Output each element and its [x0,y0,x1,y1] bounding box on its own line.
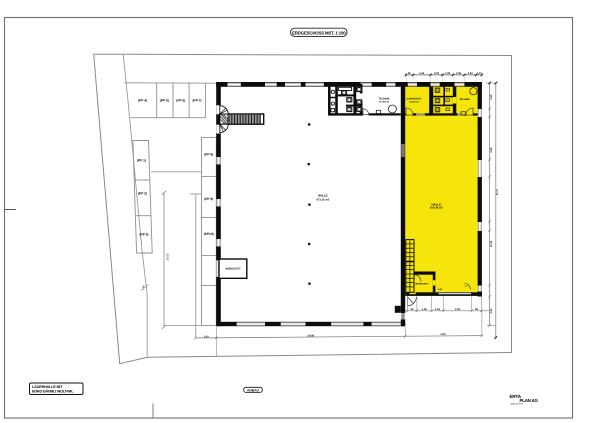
svg-text:AUFENTHALT: AUFENTHALT [406,98,422,101]
svg-text:(PP 6): (PP 6) [176,99,185,103]
svg-text:ERDGESCHOSS MST. 1:100: ERDGESCHOSS MST. 1:100 [292,31,346,36]
svg-text:2.50: 2.50 [490,94,493,99]
svg-text:1.90: 1.90 [445,72,451,75]
svg-text:(PP 2): (PP 2) [138,191,147,195]
svg-text:4600 OLTEN: 4600 OLTEN [511,402,523,405]
svg-text:6.55: 6.55 [490,147,493,152]
svg-text:ANBAU: ANBAU [247,388,260,392]
svg-text:HALLE: HALLE [318,194,328,198]
svg-text:2%: 2% [465,285,468,288]
svg-text:2.24: 2.24 [468,72,474,75]
svg-text:PLAN AG: PLAN AG [520,398,539,403]
svg-text:10.25: 10.25 [490,240,493,247]
svg-text:30.98: 30.98 [308,334,315,337]
svg-text:(PP 8): (PP 8) [204,152,213,156]
svg-text:(PP 1): (PP 1) [137,158,146,162]
svg-text:2.90: 2.90 [490,308,493,313]
svg-text:(PP 4): (PP 4) [138,99,147,103]
svg-text:TECHNIK: TECHNIK [459,98,470,101]
svg-text:2.83: 2.83 [455,308,461,311]
svg-text:21.35 m2: 21.35 m2 [409,100,419,103]
svg-text:3.44: 3.44 [419,72,425,75]
svg-text:2.06: 2.06 [456,72,462,75]
svg-text:27.25 m2: 27.25 m2 [379,100,389,103]
svg-text:WERKSTATT: WERKSTATT [415,283,429,286]
svg-text:420.38 m2: 420.38 m2 [430,207,443,210]
svg-text:WERKSTATT: WERKSTATT [225,267,241,270]
svg-text:LAGERHALLE MIT: LAGERHALLE MIT [32,385,63,389]
svg-text:TECHNIK: TECHNIK [378,98,389,101]
svg-text:(PP10): (PP10) [204,232,214,236]
svg-text:1.18: 1.18 [435,308,441,311]
svg-text:(PP 7): (PP 7) [193,99,202,103]
svg-text:1.46: 1.46 [422,308,428,311]
svg-text:1.10: 1.10 [477,72,483,75]
svg-text:4.50: 4.50 [440,333,446,336]
svg-text:(PP 5): (PP 5) [160,99,169,103]
svg-text:1.00: 1.00 [203,335,209,338]
svg-text:36.55: 36.55 [166,253,170,260]
svg-text:HALLE: HALLE [431,202,441,206]
svg-text:671.35 m2: 671.35 m2 [316,198,329,201]
svg-text:2.20: 2.20 [434,72,440,75]
svg-text:21.37: 21.37 [496,188,499,195]
svg-text:(PP 9): (PP 9) [204,197,213,201]
svg-text:(PP 3): (PP 3) [140,232,149,236]
svg-text:BÜRO BÄNNLI WOLFWIL: BÜRO BÄNNLI WOLFWIL [32,389,74,394]
